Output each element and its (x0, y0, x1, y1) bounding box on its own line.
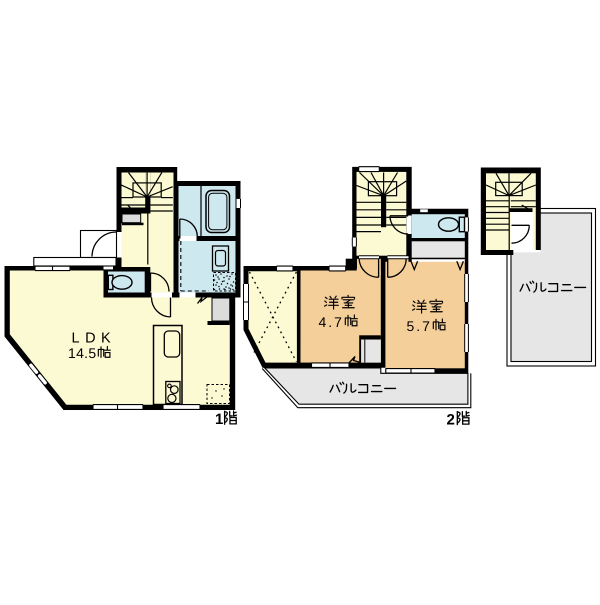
svg-text:14.5: 14.5 (68, 345, 96, 361)
svg-text:4.7: 4.7 (319, 314, 344, 330)
svg-text:2: 2 (447, 412, 455, 429)
svg-text:5.7: 5.7 (407, 318, 432, 334)
svg-text:1: 1 (215, 411, 223, 428)
